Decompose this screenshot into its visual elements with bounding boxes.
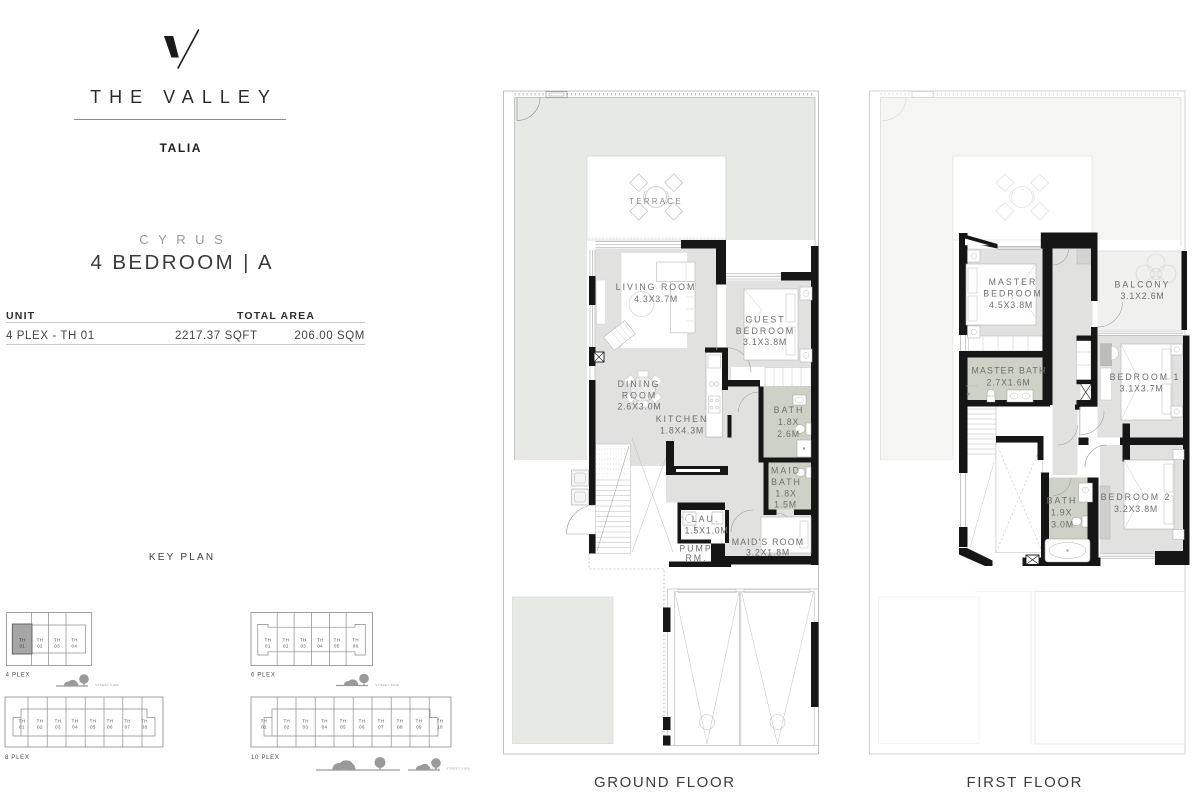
- svg-text:ROOM: ROOM: [622, 391, 657, 401]
- svg-text:TH: TH: [71, 638, 78, 643]
- svg-text:3.0M: 3.0M: [1051, 520, 1074, 530]
- svg-text:TH: TH: [397, 719, 404, 724]
- svg-text:TH: TH: [317, 638, 324, 643]
- svg-text:STREET SIDE: STREET SIDE: [95, 683, 119, 687]
- svg-text:03: 03: [55, 725, 61, 730]
- svg-text:04: 04: [322, 725, 328, 730]
- svg-text:BALCONY: BALCONY: [1114, 280, 1170, 290]
- svg-text:03: 03: [300, 644, 306, 649]
- svg-text:3.1X3.7M: 3.1X3.7M: [1119, 384, 1163, 394]
- svg-text:01: 01: [261, 725, 267, 730]
- svg-text:2.7X1.6M: 2.7X1.6M: [986, 378, 1030, 388]
- svg-text:04: 04: [72, 644, 78, 649]
- svg-text:LIVING ROOM: LIVING ROOM: [616, 282, 697, 292]
- svg-text:01: 01: [265, 644, 271, 649]
- svg-text:MASTER: MASTER: [989, 277, 1038, 287]
- svg-text:01: 01: [19, 725, 25, 730]
- svg-text:TH: TH: [107, 719, 114, 724]
- svg-text:6 PLEX: 6 PLEX: [251, 673, 276, 679]
- svg-text:TH: TH: [37, 638, 44, 643]
- svg-text:1.8X: 1.8X: [778, 417, 799, 427]
- svg-text:04: 04: [317, 644, 323, 649]
- svg-text:TH: TH: [261, 719, 268, 724]
- svg-text:08: 08: [397, 725, 403, 730]
- svg-text:1.5M: 1.5M: [774, 500, 797, 510]
- svg-text:MASTER BATH: MASTER BATH: [971, 366, 1046, 376]
- svg-text:TH: TH: [265, 638, 272, 643]
- svg-text:4.3X3.7M: 4.3X3.7M: [634, 294, 678, 304]
- svg-text:06: 06: [107, 725, 113, 730]
- svg-text:2.6M: 2.6M: [777, 429, 800, 439]
- svg-text:TH: TH: [416, 719, 423, 724]
- svg-text:TH: TH: [283, 638, 290, 643]
- svg-text:STREET SIDE: STREET SIDE: [446, 767, 470, 771]
- svg-text:TH: TH: [437, 719, 444, 724]
- svg-text:3.2X1.8M: 3.2X1.8M: [746, 548, 790, 558]
- svg-text:3.2X3.8M: 3.2X3.8M: [1114, 504, 1158, 514]
- svg-text:04: 04: [72, 725, 78, 730]
- svg-text:06: 06: [353, 644, 359, 649]
- svg-text:KITCHEN: KITCHEN: [656, 414, 709, 424]
- svg-text:BEDROOM 2: BEDROOM 2: [1101, 492, 1172, 502]
- svg-text:1.8X4.3M: 1.8X4.3M: [660, 426, 704, 436]
- svg-text:05: 05: [90, 725, 96, 730]
- svg-text:06: 06: [359, 725, 365, 730]
- svg-text:TERRACE: TERRACE: [629, 197, 683, 206]
- svg-text:TH: TH: [72, 719, 79, 724]
- svg-text:TH: TH: [37, 719, 44, 724]
- svg-text:TH: TH: [352, 638, 359, 643]
- svg-text:01: 01: [20, 644, 26, 649]
- svg-text:1.8X: 1.8X: [775, 489, 796, 499]
- svg-text:BEDROOM: BEDROOM: [736, 326, 795, 336]
- svg-text:3.1X3.8M: 3.1X3.8M: [743, 337, 787, 347]
- svg-text:TH: TH: [141, 719, 148, 724]
- svg-text:TH: TH: [19, 638, 26, 643]
- svg-text:1.9X: 1.9X: [1051, 508, 1072, 518]
- svg-text:TH: TH: [283, 719, 290, 724]
- svg-text:1.5X1.0M: 1.5X1.0M: [684, 526, 728, 536]
- svg-text:LAU.: LAU.: [692, 514, 720, 524]
- svg-text:05: 05: [340, 725, 346, 730]
- svg-text:BATH: BATH: [1047, 496, 1078, 506]
- svg-text:TH: TH: [321, 719, 328, 724]
- svg-text:05: 05: [334, 644, 340, 649]
- svg-text:BATH: BATH: [774, 405, 805, 415]
- svg-text:08: 08: [142, 725, 148, 730]
- svg-text:TH: TH: [90, 719, 97, 724]
- svg-text:MAID'S ROOM: MAID'S ROOM: [732, 537, 805, 547]
- svg-text:3.1X2.6M: 3.1X2.6M: [1120, 291, 1164, 301]
- svg-text:TH: TH: [124, 719, 131, 724]
- svg-text:TH: TH: [302, 719, 309, 724]
- svg-text:4.5X3.8M: 4.5X3.8M: [989, 300, 1033, 310]
- svg-text:02: 02: [283, 644, 289, 649]
- svg-text:02: 02: [284, 725, 290, 730]
- svg-text:03: 03: [303, 725, 309, 730]
- svg-text:07: 07: [378, 725, 384, 730]
- svg-text:TH: TH: [378, 719, 385, 724]
- svg-text:PUMP: PUMP: [679, 544, 712, 554]
- svg-text:8 PLEX: 8 PLEX: [5, 755, 30, 761]
- svg-text:BATH: BATH: [771, 477, 802, 487]
- svg-text:TH: TH: [54, 638, 61, 643]
- svg-text:MAID: MAID: [771, 466, 801, 476]
- svg-text:2.6X3.0M: 2.6X3.0M: [617, 402, 661, 412]
- svg-text:4 PLEX: 4 PLEX: [6, 673, 31, 679]
- svg-text:03: 03: [54, 644, 60, 649]
- svg-text:09: 09: [416, 725, 422, 730]
- svg-text:BEDROOM 1: BEDROOM 1: [1110, 372, 1181, 382]
- svg-text:02: 02: [37, 644, 43, 649]
- svg-text:02: 02: [37, 725, 43, 730]
- svg-text:GUEST: GUEST: [745, 315, 785, 325]
- svg-text:10 PLEX: 10 PLEX: [251, 755, 280, 761]
- svg-text:BEDROOM: BEDROOM: [983, 289, 1042, 299]
- svg-text:TH: TH: [334, 638, 341, 643]
- svg-text:DINING: DINING: [618, 379, 661, 389]
- svg-text:RM.: RM.: [685, 553, 707, 563]
- svg-text:TH: TH: [55, 719, 62, 724]
- svg-text:TH: TH: [340, 719, 347, 724]
- svg-text:TH: TH: [300, 638, 307, 643]
- svg-text:TH: TH: [19, 719, 26, 724]
- svg-text:10: 10: [437, 725, 443, 730]
- svg-text:07: 07: [125, 725, 131, 730]
- svg-text:TH: TH: [359, 719, 366, 724]
- svg-text:STREET SIDE: STREET SIDE: [375, 683, 399, 687]
